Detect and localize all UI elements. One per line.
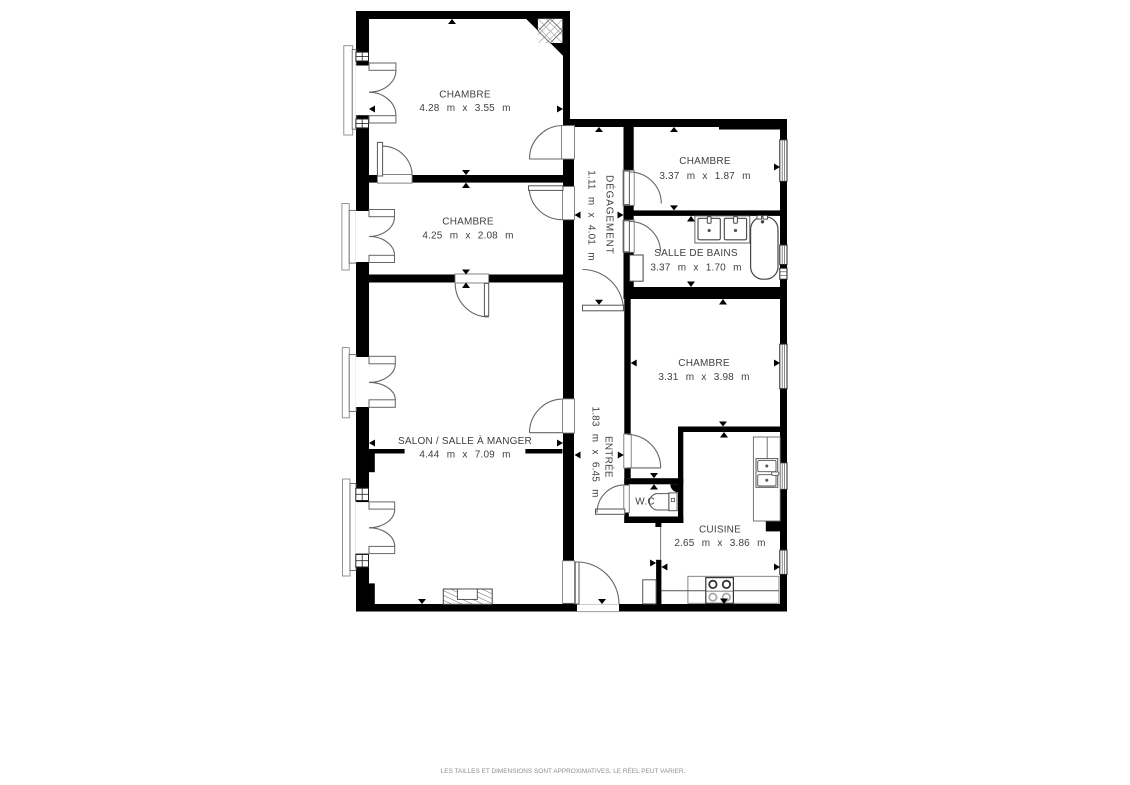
svg-text:4.44 m x 7.09 m: 4.44 m x 7.09 m (419, 450, 510, 461)
svg-text:CHAMBRE: CHAMBRE (678, 358, 730, 369)
svg-text:ENTRÉE: ENTRÉE (602, 436, 615, 478)
svg-text:SALLE DE BAINS: SALLE DE BAINS (654, 248, 738, 259)
svg-text:CUISINE: CUISINE (699, 525, 741, 536)
svg-text:2.65 m x 3.86 m: 2.65 m x 3.86 m (674, 538, 765, 549)
svg-text:CHAMBRE: CHAMBRE (679, 156, 731, 167)
svg-text:SALON / SALLE À MANGER: SALON / SALLE À MANGER (398, 434, 532, 447)
svg-text:DÉGAGEMENT: DÉGAGEMENT (603, 175, 616, 255)
svg-text:4.25 m x 2.08 m: 4.25 m x 2.08 m (422, 231, 513, 242)
svg-text:3.37 m x 1.70 m: 3.37 m x 1.70 m (650, 263, 741, 274)
svg-text:1.83 m x 6.45 m: 1.83 m x 6.45 m (590, 407, 601, 498)
svg-text:3.37 m x 1.87 m: 3.37 m x 1.87 m (659, 171, 750, 182)
svg-text:1.11 m x 4.01 m: 1.11 m x 4.01 m (585, 170, 596, 260)
svg-text:4.28 m x 3.55 m: 4.28 m x 3.55 m (419, 103, 510, 114)
svg-text:3.31 m x 3.98 m: 3.31 m x 3.98 m (658, 372, 749, 383)
svg-text:CHAMBRE: CHAMBRE (442, 217, 494, 228)
svg-text:LES TAILLES ET DIMENSIONS SONT: LES TAILLES ET DIMENSIONS SONT APPROXIMA… (441, 766, 686, 775)
svg-text:CHAMBRE: CHAMBRE (439, 90, 491, 101)
svg-text:W.C: W.C (635, 497, 655, 508)
